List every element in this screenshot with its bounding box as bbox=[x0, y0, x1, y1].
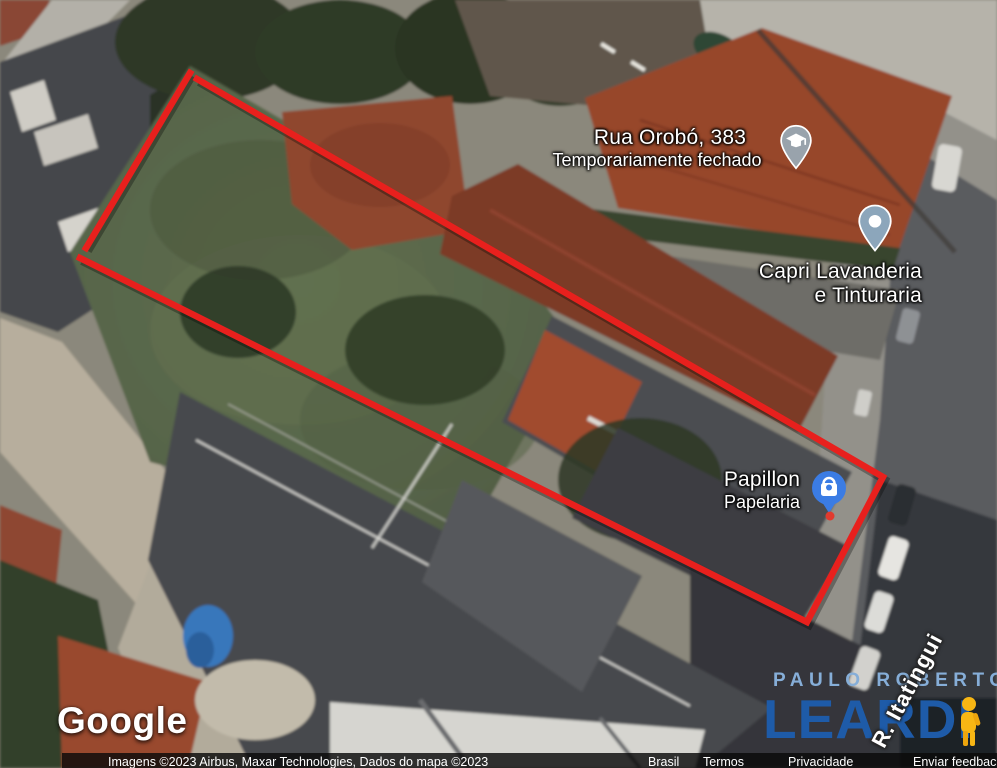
attribution-link-termos[interactable]: Termos bbox=[703, 755, 744, 768]
attribution-bar: Imagens ©2023 Airbus, Maxar Technologies… bbox=[62, 753, 997, 768]
attribution-link-brasil[interactable]: Brasil bbox=[648, 755, 679, 768]
poi-rua-orobo-subtitle: Temporariamente fechado bbox=[519, 150, 795, 171]
attribution-link-privacidade[interactable]: Privacidade bbox=[788, 755, 853, 768]
poi-papillon-subtitle: Papelaria bbox=[700, 492, 824, 513]
poi-rua-orobo[interactable]: Rua Orobó, 383 Temporariamente fechado bbox=[545, 126, 795, 171]
attribution-link-feedback[interactable]: Enviar feedback bbox=[913, 755, 997, 768]
poi-capri-title: Capri Lavanderia bbox=[759, 260, 922, 284]
place-pin-icon[interactable] bbox=[857, 203, 893, 253]
poi-papillon[interactable]: Papillon Papelaria bbox=[700, 468, 824, 513]
poi-capri-subtitle: e Tinturaria bbox=[759, 284, 922, 308]
poi-capri-lavanderia[interactable]: Capri Lavanderia e Tinturaria bbox=[759, 260, 922, 308]
google-logo[interactable]: Google bbox=[57, 700, 187, 742]
school-pin-icon[interactable] bbox=[779, 124, 813, 170]
attribution-copyright: Imagens ©2023 Airbus, Maxar Technologies… bbox=[108, 755, 488, 768]
poi-papillon-title: Papillon bbox=[700, 468, 824, 492]
poi-rua-orobo-title: Rua Orobó, 383 bbox=[545, 126, 795, 150]
map-canvas[interactable]: PAULO ROBERTO LEARDI Rua Orobó, 383 Temp… bbox=[0, 0, 997, 768]
shopping-bag-pin-icon[interactable] bbox=[808, 466, 850, 522]
satellite-imagery bbox=[0, 0, 997, 768]
